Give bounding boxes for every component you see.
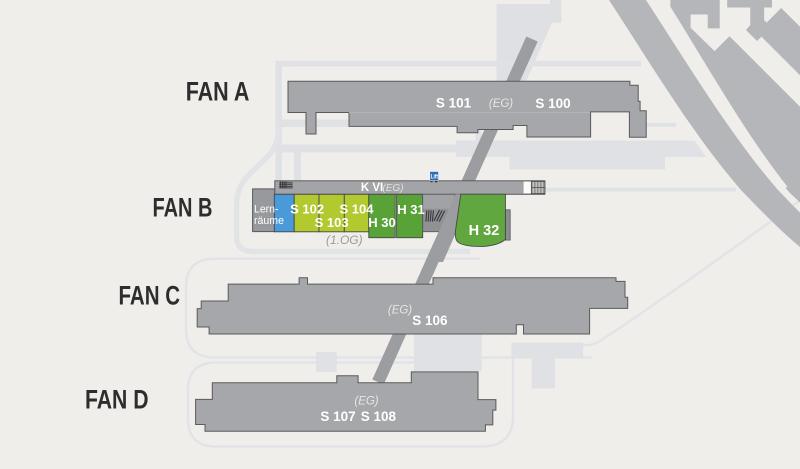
svg-text:H 31: H 31 [397,202,424,217]
svg-text:FAN D: FAN D [85,384,149,414]
svg-text:Lift: Lift [431,173,439,180]
svg-text:(EG): (EG) [489,98,513,110]
svg-text:(EG): (EG) [354,396,378,408]
svg-text:S 100: S 100 [535,96,570,111]
svg-text:FAN B: FAN B [153,193,213,223]
svg-text:S 108: S 108 [361,409,397,424]
svg-text:(EG): (EG) [388,305,412,317]
svg-text:H 32: H 32 [469,223,500,239]
svg-text:FAN A: FAN A [186,77,250,107]
svg-text:Lern-: Lern- [254,203,279,215]
svg-text:S 101: S 101 [436,95,472,110]
svg-text:H 30: H 30 [368,215,395,230]
svg-text:K VI: K VI [361,182,383,194]
svg-text:(1.OG): (1.OG) [326,233,363,247]
svg-text:(EG): (EG) [382,183,403,194]
svg-text:FAN C: FAN C [119,281,181,311]
svg-text:S 107: S 107 [320,409,355,424]
svg-text:räume: räume [254,215,284,227]
svg-text:S 103: S 103 [315,215,349,230]
svg-text:S 106: S 106 [412,313,448,328]
